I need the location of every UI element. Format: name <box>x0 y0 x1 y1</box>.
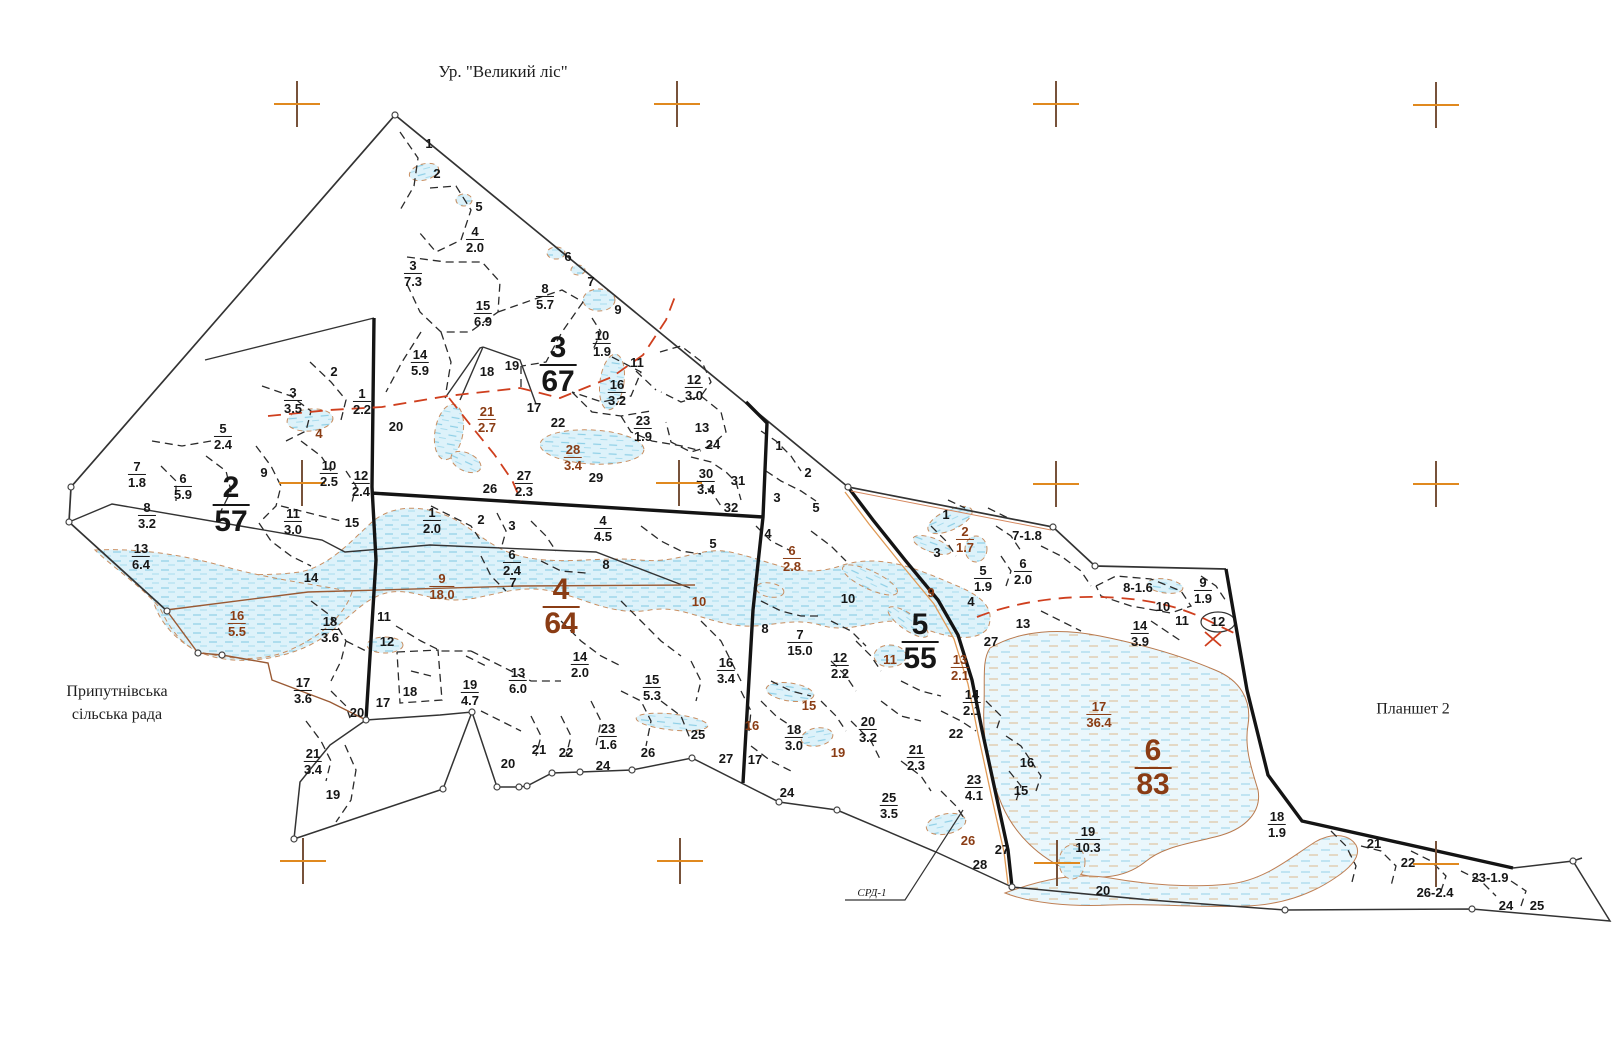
compartment-label: 19 <box>505 359 519 373</box>
compartment-label: 212.7 <box>478 405 496 435</box>
compartment-label: 183.0 <box>785 723 803 753</box>
compartment-label: 715.0 <box>787 628 812 658</box>
quarter-label: 257 <box>213 473 250 537</box>
registration-cross-icon <box>654 81 700 127</box>
compartment-label: 2 <box>330 365 337 379</box>
compartment-label: 15 <box>1014 784 1028 798</box>
compartment-label: 26 <box>483 482 497 496</box>
compartment-label: 20 <box>350 706 364 720</box>
compartment-label: 303.4 <box>697 467 715 497</box>
compartment-label: 32 <box>724 501 738 515</box>
compartment-label: 136.4 <box>132 542 150 572</box>
compartment-label: 21 <box>532 743 546 757</box>
compartment-label: 62.0 <box>1014 557 1032 587</box>
compartment-label: 27 <box>995 843 1009 857</box>
compartment-label: 15 <box>345 516 359 530</box>
compartment-label: 24 <box>780 786 794 800</box>
compartment-label: 8 <box>602 558 609 572</box>
compartment-label: 31 <box>731 474 745 488</box>
compartment-label: 27 <box>719 752 733 766</box>
compartment-label: 85.7 <box>536 282 554 312</box>
compartment-label: 4 <box>764 527 771 541</box>
compartment-label: 156.9 <box>474 299 492 329</box>
compartment-label: 7 <box>509 576 516 590</box>
registration-cross-icon <box>1034 840 1080 886</box>
compartment-label: 25 <box>1530 899 1544 913</box>
compartment-label: 918.0 <box>429 572 454 602</box>
compartment-label: 11 <box>630 356 644 370</box>
compartment-label: 17 <box>376 696 390 710</box>
compartment-label: 283.4 <box>564 443 582 473</box>
compartment-label: 165.5 <box>228 609 246 639</box>
compartment-label: 20 <box>1096 884 1110 898</box>
compartment-label: 8-1.6 <box>1123 581 1153 595</box>
compartment-label: 33.5 <box>284 386 302 416</box>
compartment-label: 122.2 <box>831 651 849 681</box>
compartment-label: 234.1 <box>965 773 983 803</box>
compartment-label: 17 <box>527 401 541 415</box>
compartment-label: 18 <box>480 365 494 379</box>
compartment-label: 25 <box>691 728 705 742</box>
compartment-label: 101.9 <box>593 329 611 359</box>
compartment-label: 163.4 <box>717 656 735 686</box>
compartment-label: 163.2 <box>608 378 626 408</box>
compartment-label: 1 <box>425 137 432 151</box>
compartment-label: 132.1 <box>951 653 969 683</box>
compartment-label: 19 <box>326 788 340 802</box>
village-council-line2: сільська рада <box>66 703 167 726</box>
compartment-label: 1 <box>775 439 782 453</box>
compartment-label: 22 <box>551 416 565 430</box>
compartment-label: 2 <box>433 167 440 181</box>
compartment-label: 155.3 <box>643 673 661 703</box>
compartment-label: 91.9 <box>1194 576 1212 606</box>
compartment-label: 51.9 <box>974 564 992 594</box>
compartment-label: 22 <box>1401 856 1415 870</box>
compartment-label: 42.0 <box>466 225 484 255</box>
compartment-label: 20 <box>389 420 403 434</box>
compartment-label: 44.5 <box>594 514 612 544</box>
registration-cross-icon <box>1033 81 1079 127</box>
compartment-label: 173.6 <box>294 676 312 706</box>
compartment-label: 9 <box>260 466 267 480</box>
compartment-label: 22 <box>559 746 573 760</box>
registration-cross-icon <box>1033 461 1079 507</box>
compartment-label: 3 <box>508 519 515 533</box>
registration-cross-icon <box>657 838 703 884</box>
compartment-label: 7-1.8 <box>1012 529 1042 543</box>
compartment-label: 142.1 <box>963 688 981 718</box>
compartment-label: 5 <box>475 200 482 214</box>
compartment-label: 29 <box>589 471 603 485</box>
compartment-label: 26-2.4 <box>1417 886 1454 900</box>
compartment-label: 12 <box>1211 615 1225 629</box>
compartment-label: 5 <box>812 501 819 515</box>
compartment-label: 9 <box>614 303 621 317</box>
compartment-label: 253.5 <box>880 791 898 821</box>
registration-cross-icon <box>1413 82 1459 128</box>
compartment-label: 9 <box>927 586 934 600</box>
compartment-label: 23-1.9 <box>1472 871 1509 885</box>
compartment-label: 37.3 <box>404 259 422 289</box>
quarter-label: 683 <box>1135 736 1172 800</box>
compartment-label: 11 <box>883 653 897 667</box>
compartment-label: 143.9 <box>1131 619 1149 649</box>
compartment-label: 52.4 <box>214 422 232 452</box>
compartment-label: 17 <box>748 753 762 767</box>
compartment-label: 10 <box>1156 600 1170 614</box>
compartment-label: 212.3 <box>907 743 925 773</box>
compartment-label: 15 <box>802 699 816 713</box>
compartment-label: 6 <box>564 250 571 264</box>
compartment-label: 2 <box>477 513 484 527</box>
compartment-label: 10 <box>692 595 706 609</box>
quarter-label: 464 <box>543 575 580 639</box>
compartment-label: 13 <box>1016 617 1030 631</box>
village-council-label: Припутнівська сільська рада <box>66 680 167 726</box>
compartment-label: 1 <box>942 508 949 522</box>
compartment-label: 26 <box>961 834 975 848</box>
registration-cross-icon <box>656 460 702 506</box>
compartment-label: 21.7 <box>956 525 974 555</box>
compartment-label: 28 <box>973 858 987 872</box>
compartment-label: 231.6 <box>599 722 617 752</box>
compartment-label: 62.8 <box>783 544 801 574</box>
compartment-label: 24 <box>706 438 720 452</box>
compartment-label: 16 <box>745 719 759 733</box>
compartment-label: 145.9 <box>411 348 429 378</box>
srd-note: СРД-1 <box>857 887 886 899</box>
compartment-label: 21 <box>1367 837 1381 851</box>
registration-cross-icon <box>279 460 325 506</box>
compartment-label: 4 <box>315 427 322 441</box>
compartment-label: 11 <box>1175 614 1189 628</box>
compartment-label: 24 <box>596 759 610 773</box>
quarter-label: 367 <box>540 333 577 397</box>
compartment-label: 26 <box>641 746 655 760</box>
compartment-label: 213.4 <box>304 747 322 777</box>
compartment-label: 62.4 <box>503 548 521 578</box>
compartment-label: 10 <box>841 592 855 606</box>
village-council-line1: Припутнівська <box>66 680 167 703</box>
compartment-label: 1910.3 <box>1075 825 1100 855</box>
forestry-map: Ур. "Великий ліс" Припутнівська сільська… <box>0 0 1615 1039</box>
registration-cross-icon <box>1413 841 1459 887</box>
compartment-label: 231.9 <box>634 414 652 444</box>
compartment-label: 123.0 <box>685 373 703 403</box>
compartment-label: 2 <box>804 466 811 480</box>
compartment-label: 102.5 <box>320 459 338 489</box>
map-title: Ур. "Великий ліс" <box>438 62 567 82</box>
compartment-label: 7 <box>587 275 594 289</box>
compartment-label: 12.2 <box>353 387 371 417</box>
compartment-label: 20 <box>501 757 515 771</box>
compartment-label: 14 <box>304 571 318 585</box>
compartment-label: 13 <box>695 421 709 435</box>
registration-cross-icon <box>1413 461 1459 507</box>
compartment-label: 11 <box>377 610 391 624</box>
compartment-label: 183.6 <box>321 615 339 645</box>
compartment-label: 18 <box>403 685 417 699</box>
registration-cross-icon <box>274 81 320 127</box>
compartment-label: 65.9 <box>174 472 192 502</box>
compartment-label: 22 <box>949 727 963 741</box>
compartment-label: 1736.4 <box>1086 700 1111 730</box>
compartment-label: 3 <box>773 491 780 505</box>
compartment-label: 16 <box>1020 756 1034 770</box>
quarter-label: 555 <box>902 610 939 674</box>
compartment-label: 5 <box>709 537 716 551</box>
compartment-label: 122.4 <box>352 469 370 499</box>
plansheet-label: Планшет 2 <box>1376 697 1450 720</box>
compartment-label: 12 <box>380 635 394 649</box>
compartment-label: 142.0 <box>571 650 589 680</box>
registration-cross-icon <box>280 838 326 884</box>
compartment-label: 19 <box>831 746 845 760</box>
compartment-label: 181.9 <box>1268 810 1286 840</box>
compartment-label: 71.8 <box>128 460 146 490</box>
compartment-label: 83.2 <box>138 501 156 531</box>
compartment-label: 8 <box>761 622 768 636</box>
compartment-label: 203.2 <box>859 715 877 745</box>
compartment-label: 24 <box>1499 899 1513 913</box>
compartment-label: 136.0 <box>509 666 527 696</box>
compartment-label: 27 <box>984 635 998 649</box>
compartment-label: 272.3 <box>515 469 533 499</box>
compartment-label: 194.7 <box>461 678 479 708</box>
compartment-label: 4 <box>967 595 974 609</box>
compartment-label: 3 <box>933 546 940 560</box>
compartment-label: 113.0 <box>284 507 302 537</box>
compartment-label: 12.0 <box>423 506 441 536</box>
